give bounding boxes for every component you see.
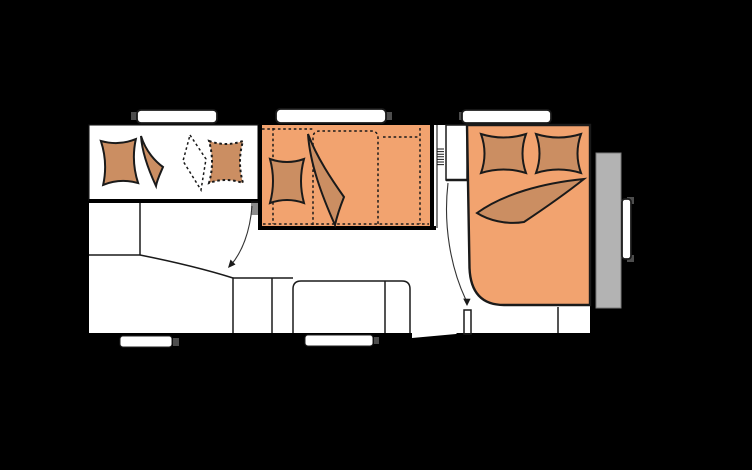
- top-windows: [131, 109, 551, 123]
- caravan-floorplan-diagram: [0, 0, 752, 470]
- middle-bunk-bed: [258, 125, 436, 230]
- cushion-pillow-dashed: [209, 141, 243, 183]
- rear-panel: [596, 153, 621, 308]
- window-bottom-middle: [305, 335, 373, 346]
- window-left: [137, 110, 217, 123]
- bunk-right-wall: [430, 125, 434, 229]
- bunk-left-wall: [258, 125, 262, 229]
- bench-front-edge: [89, 199, 258, 203]
- left-wall: [85, 125, 89, 337]
- spring-hinge-icon-right: [437, 149, 444, 165]
- rear-grab-handle: [622, 199, 631, 259]
- bunk-pillow: [270, 159, 304, 203]
- bunk-front-edge: [258, 226, 436, 230]
- bed-pillow-left: [481, 134, 526, 173]
- window-right: [462, 110, 551, 123]
- rear-double-bed: [467, 125, 590, 333]
- bed-pillow-right: [536, 134, 581, 173]
- caravan-floorplan-screenshot: [0, 0, 752, 470]
- window-middle: [276, 109, 386, 123]
- cushion-pillow: [101, 139, 138, 185]
- window-bottom-left: [120, 336, 172, 347]
- window-bottom-left-hinge: [173, 338, 179, 346]
- window-bottom-middle-hinge: [374, 337, 379, 344]
